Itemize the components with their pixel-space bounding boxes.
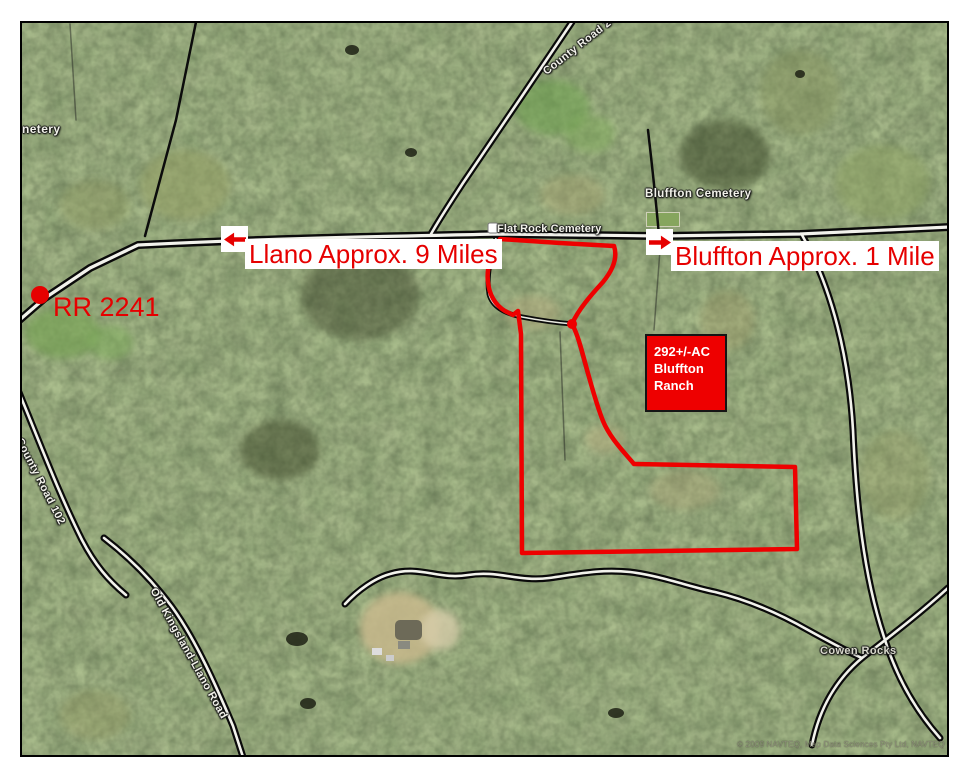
right-arrow-icon [649, 235, 671, 250]
map-canvas: County Road 247 Bluffton Cemetery Flat R… [20, 21, 949, 757]
ranch-name-line2: Ranch [654, 377, 725, 394]
map-copyright: © 2009 NAVTEQ, Map Data Sciences Pty Ltd… [737, 740, 945, 749]
llano-distance-label: Llano Approx. 9 Miles [245, 239, 502, 269]
left-arrow-icon [224, 232, 246, 247]
bluffton-distance-label: Bluffton Approx. 1 Mile [671, 241, 939, 271]
boundary-corner-dot [567, 319, 577, 329]
rr2241-road-label: RR 2241 [53, 292, 160, 323]
rr2241-location-dot [31, 286, 49, 304]
ranch-info-box: 292+/-AC Bluffton Ranch [645, 334, 727, 412]
ranch-acreage: 292+/-AC [654, 343, 725, 360]
property-boundary-layer [20, 21, 949, 757]
property-boundary-outline [488, 239, 797, 553]
ranch-name-line1: Bluffton [654, 360, 725, 377]
satellite-map: County Road 247 Bluffton Cemetery Flat R… [20, 21, 949, 757]
bluffton-direction-arrow [646, 229, 673, 255]
llano-direction-arrow [221, 226, 248, 252]
